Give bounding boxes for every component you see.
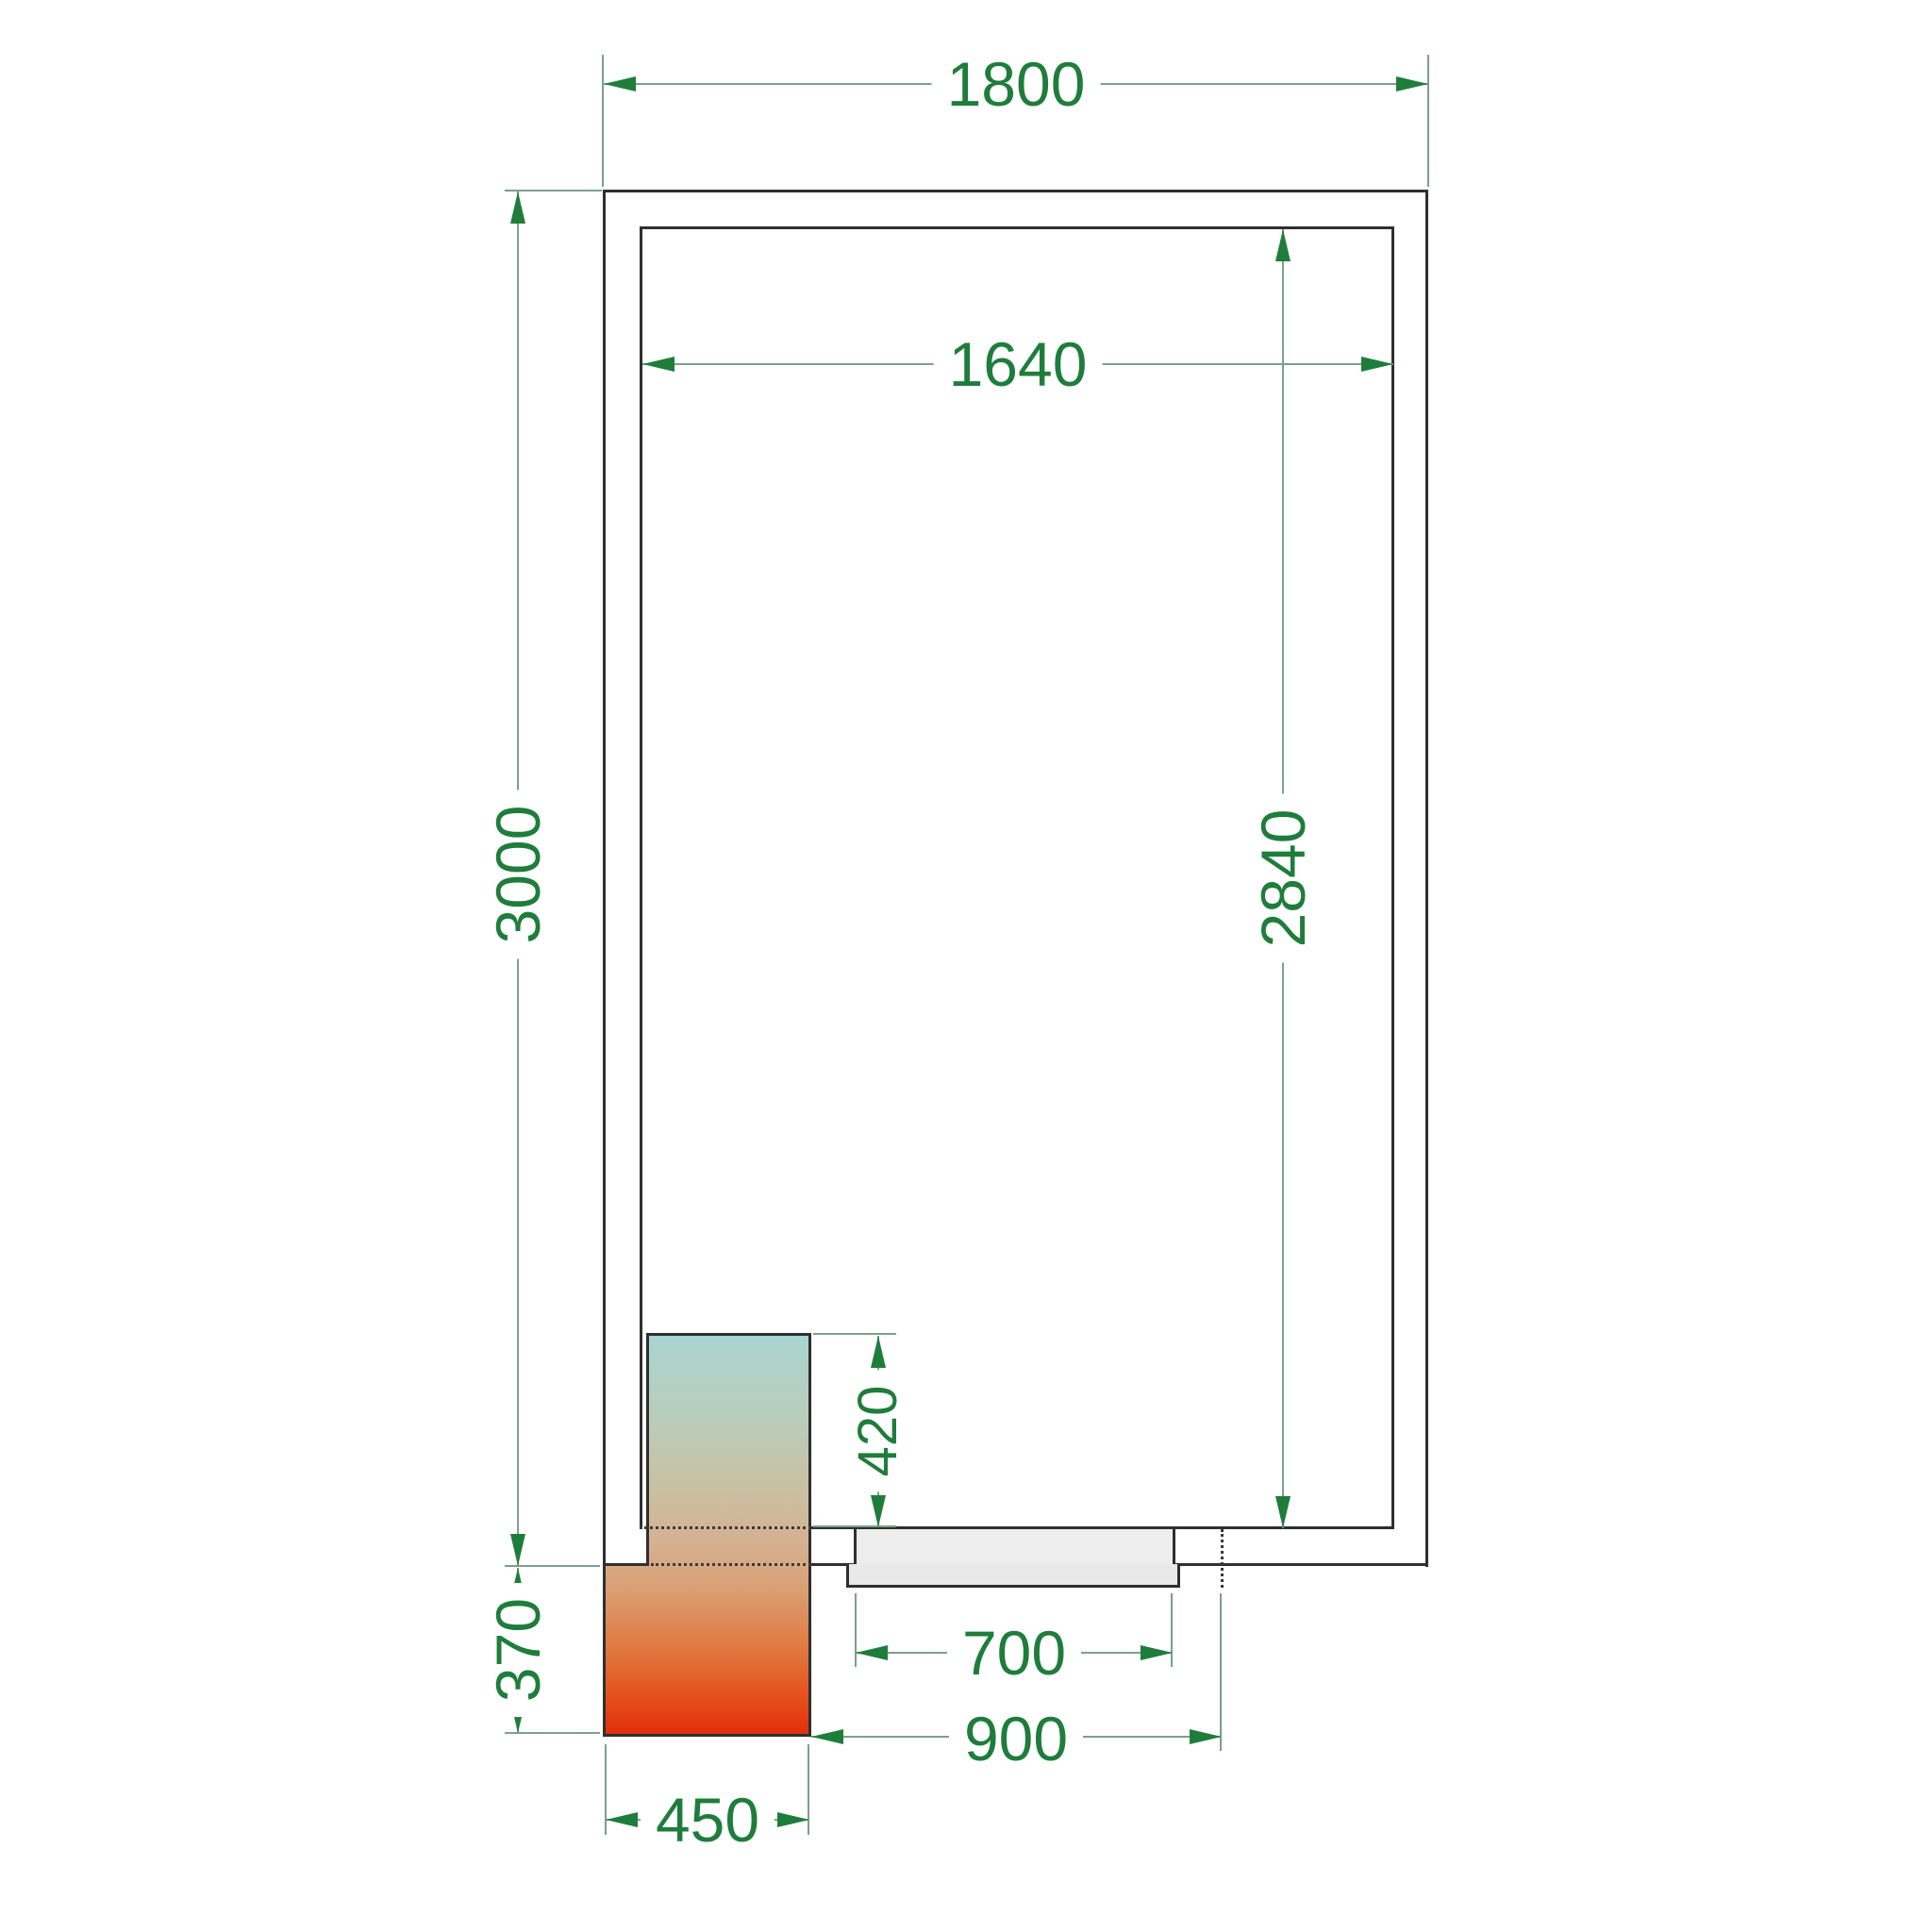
dim-3000-arrow-bottom bbox=[510, 1534, 525, 1566]
dim-900-arrow-left bbox=[811, 1729, 843, 1744]
dim-1800-label: 1800 bbox=[932, 51, 1101, 117]
unit-outline-bottom bbox=[603, 1734, 811, 1737]
dim-450-arrow-left bbox=[606, 1812, 638, 1827]
dim-420-ext-top bbox=[813, 1333, 896, 1335]
unit-outline-left-lower bbox=[603, 1563, 606, 1737]
dim-1640-arrow-right bbox=[1361, 357, 1393, 372]
door-frame-hidden-edge bbox=[1221, 1529, 1224, 1588]
door-opening-panel bbox=[857, 1529, 1173, 1564]
door-jamb-right bbox=[1173, 1526, 1175, 1566]
dim-3000-label: 3000 bbox=[485, 791, 551, 959]
dim-2840-label: 2840 bbox=[1250, 794, 1316, 963]
dim-1800-arrow-right bbox=[1396, 76, 1428, 92]
dim-450-label: 450 bbox=[641, 1787, 774, 1853]
dim-900-label: 900 bbox=[949, 1706, 1083, 1772]
dim-420-arrow-top bbox=[871, 1336, 886, 1368]
dim-420-label: 420 bbox=[849, 1371, 908, 1492]
outer-wall-hidden-edge-unit bbox=[651, 1563, 811, 1566]
outer-wall-bottom-edge-right bbox=[1173, 1563, 1428, 1566]
dim-2840-arrow-bottom bbox=[1275, 1496, 1291, 1528]
dim-900-arrow-right bbox=[1190, 1729, 1222, 1744]
dim-370-label: 370 bbox=[485, 1583, 551, 1717]
dim-700-arrow-left bbox=[856, 1645, 888, 1660]
dim-1800-ext-left bbox=[602, 55, 604, 187]
door-leaf bbox=[846, 1564, 1180, 1588]
technical-drawing-canvas: 1800 1640 3000 2840 420 370 450 700 900 bbox=[0, 0, 1932, 1932]
dim-450-arrow-right bbox=[777, 1812, 809, 1827]
dim-420-arrow-bottom bbox=[871, 1495, 886, 1527]
dim-3000-arrow-top bbox=[510, 192, 525, 224]
dim-1640-arrow-left bbox=[642, 357, 675, 372]
dim-700-arrow-right bbox=[1141, 1645, 1173, 1660]
dim-2840-arrow-top bbox=[1275, 229, 1291, 261]
dim-1800-arrow-left bbox=[604, 76, 636, 92]
dim-1800-ext-right bbox=[1427, 55, 1429, 187]
dim-900-ext-right bbox=[1220, 1593, 1222, 1751]
inner-wall-hidden-edge bbox=[640, 1526, 811, 1529]
dim-700-label: 700 bbox=[947, 1620, 1081, 1686]
dim-1640-label: 1640 bbox=[934, 331, 1103, 397]
